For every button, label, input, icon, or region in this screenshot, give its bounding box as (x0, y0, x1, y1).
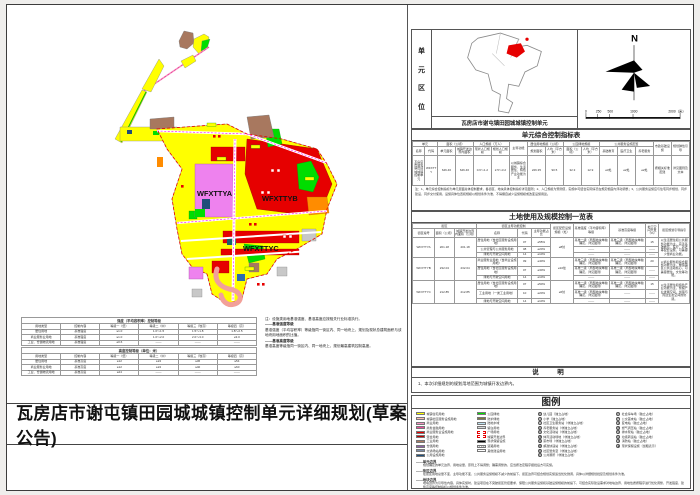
legend-swatch (477, 440, 486, 443)
legend-symbol-icon: 小 (538, 417, 542, 421)
legend-item: ■现状保留设施（加粗表示） (616, 444, 687, 448)
land-func-name: 工业用地（一类工业用地） (476, 290, 518, 299)
north-scale-cell: N 025050010002000（米） (578, 30, 690, 128)
land-underground: —— (645, 299, 659, 304)
unit-data-cell: 646.46 (437, 156, 455, 186)
svg-text:N: N (631, 33, 638, 44)
unit-header-sub: 人均（平方米） (581, 147, 599, 156)
legend-label: 商业用地 (427, 421, 439, 425)
legend-item: 城镇社区服务设施用地 (416, 417, 477, 421)
legend-symbol-icon: 文 (538, 430, 542, 434)
unit-index-section: 单元综合控制指标表 单元面积（公顷）人口规模（万人）主导功能居住用地规模（公顷）… (411, 129, 691, 211)
land-height: 基准二级（局部地块单独确定，详见图则） (609, 266, 645, 275)
legend-symbol-icon: 养 (538, 426, 542, 430)
land-header-sub: 面积（公顷） (435, 229, 454, 238)
mini-table-cell: —— (178, 340, 217, 346)
legend-symbol-icon: 变 (616, 421, 620, 425)
land-func-code: 07 (518, 266, 532, 275)
land-header-sub: 街区编号 (413, 229, 435, 238)
legend-symbol-icon: 幼 (538, 412, 542, 416)
legend-item: 消消防站（独立占地） (616, 440, 687, 444)
land-func-share: ≥50% (532, 281, 551, 290)
intensity-grade-table: 强度（平均容积率）控制等级用地类型控制内容等级一（低）等级二（中）等级三（较高）… (21, 317, 257, 346)
unit-header-sub: 现状人口规模 (473, 147, 491, 156)
land-height: 基准二级（局部地块单独确定，详见图则） (609, 281, 645, 290)
legend-label: 文化活动站（非独立占地） (543, 430, 579, 434)
legend-symbol-icon: 卫 (538, 421, 542, 425)
legend-swatch (416, 422, 425, 425)
notes-title: 说 明 (412, 368, 690, 378)
unit-header-group: 主导功能 (509, 142, 527, 156)
legend-label: 城镇社区服务设施用地 (427, 417, 457, 421)
legend-column: 幼幼儿园（独立占地）小小学（独立占地）卫社区卫生服务站（非独立占地）养养老服务站… (538, 412, 617, 457)
legend-label: 社区卫生服务站（非独立占地） (543, 421, 585, 425)
land-block-id: WFXTTYB (413, 258, 435, 281)
land-func-share: ≥30% (532, 266, 551, 275)
legend-item: 仓储用地 (416, 444, 477, 448)
note-line: 基准高度等级指同一街区内、同一地块上，规划最高建筑控制高度。 (265, 344, 405, 349)
legend-item: 留白用地 (477, 426, 538, 430)
legend-item: 商业用地 (416, 421, 477, 425)
legend-symbol-icon: 环 (616, 435, 620, 439)
land-header-group: 基准强度（平均容积率）等级 (573, 224, 609, 238)
mini-table-cell: 基准高度 (61, 370, 100, 376)
mini-table-cell: —— (139, 370, 178, 376)
legend-label: 消防站（独立占地） (622, 439, 649, 443)
unit-data-cell: 90.5 (545, 156, 563, 186)
legend-symbol-icon: 消 (616, 439, 620, 443)
scale-tick: 2000（米） (668, 109, 684, 114)
side-label-char: 元 (418, 65, 425, 75)
legend-item: 城镇开发边界 (477, 435, 538, 439)
legend-item: 陆地水域 (477, 421, 538, 425)
unit-index-title: 单元综合控制指标表 (412, 130, 690, 141)
unit-data-cell: 详见图则及文本 (671, 156, 689, 186)
legend-item: 警社区警务室（非独立占地） (538, 449, 617, 453)
mini-table-row: 工业、仓储物流用地基准强度≥0.6—————— (22, 340, 257, 346)
landuse-table: 街区街区主导功能控制街区配套设施规模（处）基准强度（平均容积率）等级基准高度等级… (412, 223, 690, 304)
legend-swatch (416, 454, 425, 457)
legend-swatch (477, 412, 486, 415)
land-data-row: WFXTTYB232.04232.04商业服务业用地（含商业设施用地）09≥40… (413, 258, 690, 267)
land-header-group: 街区配套设施规模（处） (551, 224, 573, 238)
legend-grid: 城镇住宅用地城镇社区服务设施用地商业用地商务金融用地商业服务业设施用地混合用地工… (412, 409, 690, 457)
legend-swatch (477, 426, 486, 429)
unit-header-sub: 名称 (413, 147, 425, 156)
land-intensity: 基准二级（局部地块单独确定，详见图则） (573, 266, 609, 275)
legend-item: 菜菜市场（非独立占地） (538, 440, 617, 444)
legend-line-desc: 地块边界为引导性内容，具体实施时，建设项目在不突破街区管控要求、保障公共服务设施… (416, 482, 686, 490)
legend-symbol-icon: 体 (538, 435, 542, 439)
legend-label: 公交首末站（独立占地） (622, 417, 655, 421)
mini-table-cell: 基准强度 (61, 340, 100, 346)
unit-data-cell: 12.9 (581, 156, 599, 186)
unit-header-sub: 规划人口规模 (491, 147, 509, 156)
legend-label: 邮政快递站（非独立占地） (543, 444, 579, 448)
land-data-row: WFXTTYA201.18201.18居住用地（含社区服务设施用地）07≥55%… (413, 238, 690, 247)
legend-label: 陆地水域 (487, 421, 499, 425)
mini-table-cell: —— (217, 370, 256, 376)
unit-data-cell: 以城镇综合服务、生活居住、特色产业功能为主 (509, 156, 527, 186)
landuse-title: 土地使用及规模控制一览表 (412, 212, 690, 223)
notes-section: 说 明 1、本次详细规划的规划用地范围为城镇开发边界内。 (411, 367, 691, 393)
land-func-share: ≥55% (532, 238, 551, 247)
legend-symbol-icon: 巴 (616, 417, 620, 421)
unit-header-sub: 养老服务 (635, 147, 653, 156)
legend-swatch (416, 431, 425, 434)
legend-swatch (416, 412, 425, 415)
land-underground: 20 (645, 258, 659, 267)
land-block-id: WFXTTYA (413, 238, 435, 258)
land-header-group: 基准高度等级 (609, 224, 645, 238)
title-strip: 瓦房店市谢屯镇田园城城镇控制单元详细规划(草案公告) (7, 403, 408, 445)
land-func-name: 居住用地（含社区服务设施用地） (476, 238, 518, 247)
unit-header-sub: 基础教育 (599, 147, 617, 156)
notes-item: 1、本次详细规划的规划用地范围为城镇开发边界内。 (412, 378, 690, 387)
legend-column: P社会停车场（独立占地）巴公交首末站（独立占地）变变电站（独立占地）燃燃气调压站… (616, 412, 687, 457)
legend-swatch (477, 445, 486, 448)
land-header-group: 地下空间开发（%） (645, 224, 659, 238)
land-block-area: 201.18 (435, 238, 454, 258)
legend-label: 排水泵站（独立占地） (622, 430, 652, 434)
legend-column: 公园绿地防护绿地陆地水域留白用地广场用地城镇开发边界现状保留设施道路用地其他建设… (477, 412, 538, 457)
scale-tick: 0 (585, 110, 587, 114)
mini-table-cell: —— (178, 370, 217, 376)
mini-table-cell: 工业、仓储物流用地 (22, 370, 61, 376)
land-intensity: —— (573, 299, 609, 304)
unit-data-cell: 2.5～3.2 (491, 156, 509, 186)
legend-item: 混合用地 (416, 435, 477, 439)
land-facilities: ≥8处 (551, 238, 573, 258)
legend-symbol-icon: 邮 (538, 444, 542, 448)
legend-item: 泵排水泵站（独立占地） (616, 430, 687, 434)
legend-label: 现状保留设施（加粗表示） (622, 444, 658, 448)
land-height: —— (609, 299, 645, 304)
unit-header-sub: 医疗卫生 (617, 147, 635, 156)
land-header-sub: 主导功能占比 (532, 229, 551, 238)
legend-label: 仓储用地 (427, 444, 439, 448)
legend-label: 现状保留设施 (487, 439, 505, 443)
land-intensity: 基准二级（局部地块单独确定，详见图则） (573, 281, 609, 290)
unit-header-sub-row: 名称代码单元面积城镇开发边界内面积现状人口规模规划人口规模规划面积人均（平方米）… (413, 147, 690, 156)
land-func-code: 09 (518, 258, 532, 267)
land-block-area: 212.85 (435, 281, 454, 304)
note-line: 基准强度（平均容积率）等级指同一街区内、同一地块上，规划及现状总建筑面积与该地块… (265, 328, 405, 339)
legend-swatch (416, 417, 425, 420)
land-height: 基准三级（局部地块单独确定，详见图则） (609, 238, 645, 247)
legend-swatch (477, 431, 486, 434)
unit-data-cell: 0.6～1.2 (473, 156, 491, 186)
land-intensity: 基准二级（局部地块单独确定，详见图则） (573, 238, 609, 247)
legend-label: 公园绿地 (487, 412, 499, 416)
unit-data-cell: ≥3处 (599, 156, 617, 186)
legend-label: 菜市场（非独立占地） (543, 439, 573, 443)
land-func-code: 07 (518, 238, 532, 247)
land-guide: 以生活居住和特色产业功能为主，预留产业发展空间，加强与周边生态空间的协调。 (659, 281, 690, 304)
unit-data-cell: WFXTTY (425, 156, 437, 186)
mini-table-cell: —— (217, 340, 256, 346)
legend-item: 卫社区卫生服务站（非独立占地） (538, 421, 617, 425)
legend-symbol-icon: P (616, 412, 620, 416)
land-facilities: ≥6处 (551, 281, 573, 304)
unit-location-panel: 单元区位 瓦房店市谢屯镇田园城城镇控制单元 N (411, 29, 691, 129)
legend-item: 广场用地 (477, 430, 538, 434)
scale-tick-labels: 025050010002000（米） (585, 109, 684, 114)
legend-item: 文文化活动站（非独立占地） (538, 430, 617, 434)
legend-label: 公用设施用地 (427, 453, 445, 457)
legend-label: 工业用地 (427, 439, 439, 443)
legend-label: 防护绿地 (487, 417, 499, 421)
map-label-b: WFXTTYB (262, 194, 298, 203)
land-header-sub: 代码 (518, 229, 532, 238)
legend-item: 巴公交首末站（独立占地） (616, 417, 687, 421)
legend-item: 幼幼儿园（独立占地） (538, 412, 617, 416)
land-guide: 以生活居住和公共服务功能为主，完善基础教育、医疗、养老等配套设施，可兼容少量商业… (659, 238, 690, 258)
unit-header-sub: 代码 (425, 147, 437, 156)
landuse-section: 土地使用及规模控制一览表 街区街区主导功能控制街区配套设施规模（处）基准强度（平… (411, 211, 691, 367)
unit-data-cell: ≥2处 (635, 156, 653, 186)
legend-swatch (416, 449, 425, 452)
land-block-boundary: 232.04 (454, 258, 476, 281)
plan-sheet: WFXTTYA WFXTTYB WFXTTYC 强度（平均容积率）控制等级用地类… (6, 4, 694, 491)
land-block-area: 232.04 (435, 258, 454, 281)
land-func-name: 绿地与开敞空间用地 (476, 299, 518, 304)
intensity-note-block: 注：设施类用地基准强度、基准高度应按相关行业标准执行。——基准强度等级基准强度（… (265, 317, 405, 349)
north-arrow-icon: N (578, 30, 690, 104)
panel-divider (407, 5, 408, 490)
legend-item: 小小学（独立占地） (538, 417, 617, 421)
legend-swatch (416, 440, 425, 443)
land-block-id: WFXTTYC (413, 281, 435, 304)
land-func-share: ≥20% (532, 290, 551, 299)
legend-item: 邮邮政快递站（非独立占地） (538, 444, 617, 448)
unit-header-sub: 人均（平方米） (545, 147, 563, 156)
land-header-group: 街区规划引导指引 (659, 224, 690, 238)
scale-bar: 025050010002000（米） (578, 104, 690, 128)
unit-data-cell: 瓦房店市谢屯镇田园城城镇控制单元 (413, 156, 425, 186)
land-underground: —— (645, 266, 659, 275)
mini-table-row: 工业、仓储物流用地基准高度≤24—————— (22, 370, 257, 376)
unit-data-row: 瓦房店市谢屯镇田园城城镇控制单元WFXTTY646.46646.460.6～1.… (413, 156, 690, 186)
mini-table-cell: ≤24 (100, 370, 139, 376)
legend-item: 现状保留设施 (477, 440, 538, 444)
legend-item: 城镇住宅用地 (416, 412, 477, 416)
location-minimap-svg (432, 30, 577, 116)
land-header-sub: 名称 (476, 229, 518, 238)
legend-swatch (477, 435, 486, 438)
legend-item: 工业用地 (416, 440, 477, 444)
legend-swatch (416, 426, 425, 429)
unit-index-footnote: 注：1、单元综合控制指标为单元层面总体控制要求，各街区、地块具体控制指标详见图则… (412, 186, 690, 196)
mini-table-cell: —— (139, 340, 178, 346)
location-minimap: 瓦房店市谢屯镇田园城城镇控制单元 (432, 30, 578, 128)
map-label-c: WFXTTYC (243, 244, 279, 253)
legend-item: 养养老服务站（非独立占地） (538, 426, 617, 430)
land-underground: —— (645, 290, 659, 299)
legend-column: 城镇住宅用地城镇社区服务设施用地商业用地商务金融用地商业服务业设施用地混合用地工… (416, 412, 477, 457)
unit-header-sub: 面积（公顷） (563, 147, 581, 156)
land-block-boundary: 201.18 (454, 238, 476, 258)
land-intensity: 基准一级（局部地块单独确定，详见图则） (573, 290, 609, 299)
height-grade-table: 高度控制等级（单位：米）用地类型控制内容等级一（低）等级二（中）等级三（较高）等… (21, 347, 257, 376)
land-func-share: ≥40% (532, 258, 551, 267)
planning-map: WFXTTYA WFXTTYB WFXTTYC (21, 11, 407, 315)
land-height: —— (609, 290, 645, 299)
land-func-share: ≥10% (532, 299, 551, 304)
land-func-code: 14 (518, 299, 532, 304)
legend-label: 商业服务业设施用地 (427, 430, 454, 434)
legend-item: 交通场站用地 (416, 449, 477, 453)
scale-tick: 1000 (630, 110, 638, 114)
land-underground: 15 (645, 238, 659, 247)
legend-item: 商务金融用地 (416, 426, 477, 430)
legend-label: 广场用地 (487, 430, 499, 434)
side-label-char: 单 (418, 46, 425, 56)
legend-label: 幼儿园（独立占地） (543, 412, 570, 416)
legend-label: 城镇住宅用地 (427, 412, 445, 416)
legend-item: 公用设施用地 (416, 453, 477, 457)
mini-table-cell: 工业、仓储物流用地 (22, 340, 61, 346)
legend-item: 防护绿地 (477, 417, 538, 421)
legend-swatch (416, 435, 425, 438)
map-label-a: WFXTTYA (197, 189, 233, 198)
legend-symbol-icon: ■ (616, 444, 620, 448)
side-label-char: 区 (418, 83, 425, 93)
location-caption: 瓦房店市谢屯镇田园城城镇控制单元 (432, 116, 577, 128)
legend-symbol-icon: 燃 (616, 426, 620, 430)
legend-label: 小学（独立占地） (543, 417, 567, 421)
legend-swatch (477, 449, 486, 452)
land-underground: 15 (645, 281, 659, 290)
unit-data-cell: ≥2处 (617, 156, 635, 186)
land-func-name: 居住用地（含社区服务设施用地） (476, 266, 518, 275)
legend-item: P社会停车场（独立占地） (616, 412, 687, 416)
legend-item: 其他建设用地 (477, 449, 538, 453)
legend-item: 公公共厕所（非独立占地） (538, 453, 617, 457)
page-title: 瓦房店市谢屯镇田园城城镇控制单元详细规划(草案公告) (7, 399, 408, 449)
unit-location-side-label: 单元区位 (412, 30, 432, 128)
legend-line-items: ——单元边界规划确定的单元边界、用地总量，原则上不得调整；确需调整的，应当按法定… (412, 457, 690, 490)
legend-item: 公园绿地 (477, 412, 538, 416)
legend-section: 图例 城镇住宅用地城镇社区服务设施用地商业用地商务金融用地商业服务业设施用地混合… (411, 395, 691, 489)
legend-item: 变变电站（独立占地） (616, 421, 687, 425)
unit-header-group: 规划弹性引导 (671, 142, 689, 156)
unit-index-table: 单元面积（公顷）人口规模（万人）主导功能居住用地规模（公顷）公园绿地规模公共服务… (412, 141, 690, 186)
land-facilities: ≥10处 (551, 258, 573, 281)
legend-item: 道路用地 (477, 444, 538, 448)
legend-symbol-icon: 公 (538, 453, 542, 457)
unit-header-group: 市政基础设施 (653, 142, 671, 156)
legend-symbol-icon: 菜 (538, 439, 542, 443)
unit-data-cell: 32.3 (563, 156, 581, 186)
land-func-name: 居住用地（含社区服务设施用地） (476, 281, 518, 290)
unit-header-sub: 城镇开发边界内面积 (455, 147, 473, 156)
land-func-code: 10 (518, 290, 532, 299)
legend-label: 变电站（独立占地） (622, 421, 649, 425)
legend-swatch (416, 445, 425, 448)
side-label-char: 位 (418, 102, 425, 112)
land-header-sub: 城镇开发边界内面积（公顷） (454, 229, 476, 238)
land-data-row: WFXTTYC212.85212.85居住用地（含社区服务设施用地）07≥50%… (413, 281, 690, 290)
land-guide: 以商业服务和综合服务功能为主，塑造镇区公共活动核心，可兼容居住、文化等功能。 (659, 258, 690, 281)
scale-tick: 250 (596, 110, 602, 114)
unit-data-cell: 按相关标准配建 (653, 156, 671, 186)
legend-item: 商业服务业设施用地 (416, 430, 477, 434)
legend-swatch (477, 417, 486, 420)
legend-item: 燃燃气调压站（独立占地） (616, 426, 687, 430)
scale-tick: 500 (608, 110, 614, 114)
legend-label: 其他建设用地 (487, 449, 505, 453)
legend-label: 社会停车场（独立占地） (622, 412, 655, 416)
legend-label: 公共厕所（非独立占地） (543, 453, 576, 457)
legend-symbol-icon: 警 (538, 449, 542, 453)
legend-label: 道路用地 (487, 444, 499, 448)
legend-title: 图例 (412, 396, 690, 409)
mini-table-cell: ≥0.6 (100, 340, 139, 346)
unit-data-cell: 646.46 (455, 156, 473, 186)
land-block-boundary: 212.85 (454, 281, 476, 304)
legend-swatch (477, 422, 486, 425)
unit-data-cell: 226.35 (527, 156, 545, 186)
unit-header-sub: 规划面积 (527, 147, 545, 156)
legend-symbol-icon: 泵 (616, 430, 620, 434)
land-func-code: 07 (518, 281, 532, 290)
unit-header-sub: 单元面积 (437, 147, 455, 156)
plan-sheet-page: { "page": { "main_title": "瓦房店市谢屯镇田园城城镇控… (0, 0, 700, 495)
